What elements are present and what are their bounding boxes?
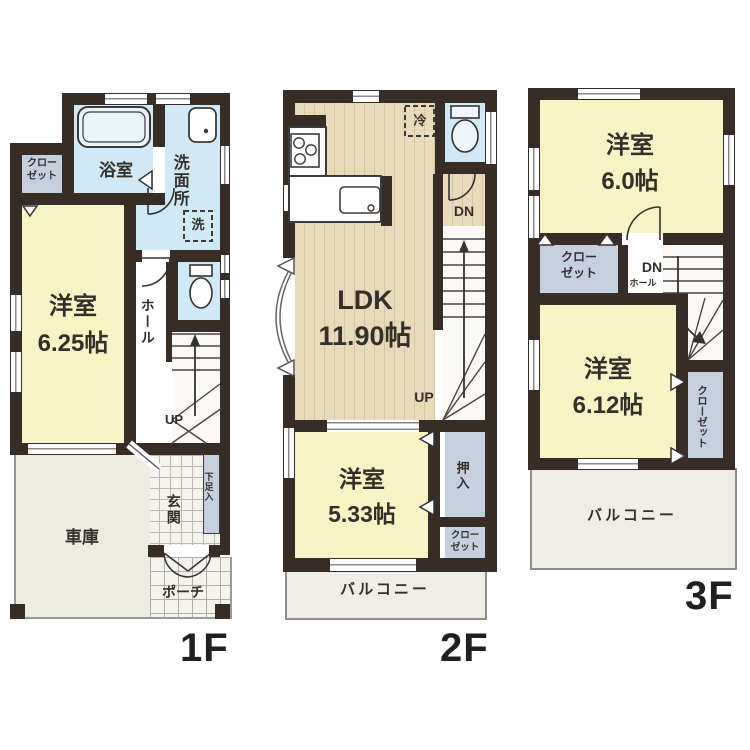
window bbox=[284, 428, 294, 478]
room-ldk-2f bbox=[295, 103, 435, 420]
wall bbox=[288, 115, 326, 127]
label-bath-1f: 浴室 bbox=[88, 160, 144, 182]
wall bbox=[676, 305, 688, 470]
room-toilet-2f bbox=[445, 103, 485, 162]
window bbox=[529, 340, 539, 390]
wall bbox=[528, 88, 540, 470]
label-closet2-3f: クローゼット bbox=[696, 376, 707, 456]
label-washer-1f: 洗 bbox=[189, 217, 207, 234]
wall bbox=[283, 90, 495, 103]
label-porch-1f: ポーチ bbox=[152, 583, 214, 601]
stairs-2f bbox=[443, 226, 485, 420]
window bbox=[486, 112, 496, 164]
wall bbox=[166, 262, 178, 320]
label-balcony-3f: バルコニー bbox=[565, 506, 699, 526]
label-hall-3f: ホール bbox=[626, 278, 660, 290]
wall bbox=[148, 545, 164, 557]
room-washroom-1f bbox=[136, 205, 165, 250]
wall bbox=[528, 293, 688, 305]
label-ldk-2f: LDK 11.90帖 bbox=[305, 282, 425, 355]
wall bbox=[166, 332, 172, 362]
window bbox=[724, 135, 734, 185]
label-closet1-3f: クロー ゼット bbox=[545, 250, 613, 281]
wall bbox=[435, 162, 487, 174]
bow-window bbox=[276, 258, 294, 376]
wall bbox=[166, 320, 222, 332]
wall bbox=[62, 93, 74, 205]
floor-plan: クロー ゼット 浴室 洗面所 洗 洋室 6.25帖 ホール UP 玄関 下足入 … bbox=[0, 0, 750, 750]
wall bbox=[528, 233, 622, 245]
window bbox=[221, 255, 229, 273]
window bbox=[221, 280, 229, 298]
label-dn-2f: DN bbox=[448, 202, 480, 220]
corner-post bbox=[215, 604, 230, 619]
wall bbox=[136, 250, 142, 262]
label-hall-1f: ホール bbox=[140, 272, 155, 372]
label-garage-1f: 車庫 bbox=[58, 527, 106, 549]
label-closet-1f: クロー ゼット bbox=[20, 157, 64, 183]
window bbox=[105, 94, 147, 104]
label-up-1f: UP bbox=[158, 412, 190, 429]
window bbox=[330, 559, 416, 571]
wall bbox=[663, 233, 735, 245]
window bbox=[284, 185, 294, 211]
wall bbox=[209, 545, 220, 557]
label-closet-2f: クロー ゼット bbox=[446, 530, 484, 555]
bath-door bbox=[153, 147, 165, 193]
label-bedroom-1f: 洋室 6.25帖 bbox=[24, 288, 122, 362]
window bbox=[578, 459, 638, 469]
floor-label-2f: 2F bbox=[440, 626, 489, 671]
wall bbox=[433, 174, 443, 330]
wall bbox=[10, 193, 165, 205]
wall bbox=[170, 250, 220, 262]
label-dn-3f: DN bbox=[638, 258, 666, 276]
wall bbox=[381, 176, 392, 226]
label-oshiire-2f: 押入 bbox=[455, 448, 469, 504]
label-shoebox-1f: 下足入 bbox=[203, 455, 212, 519]
label-fridge-2f: 冷 bbox=[408, 113, 432, 130]
window bbox=[11, 295, 21, 331]
window bbox=[156, 94, 190, 104]
window bbox=[11, 352, 21, 392]
wall bbox=[428, 432, 440, 560]
window bbox=[28, 444, 116, 454]
label-bedroom1-3f: 洋室 6.0帖 bbox=[560, 128, 700, 200]
label-balcony-2f: バルコニー bbox=[318, 580, 452, 600]
label-bedroom2-3f: 洋室 6.12帖 bbox=[545, 352, 671, 424]
window bbox=[221, 146, 229, 184]
label-entrance-1f: 玄関 bbox=[166, 478, 181, 542]
corner-post bbox=[10, 604, 25, 619]
wall bbox=[124, 205, 136, 443]
window bbox=[529, 148, 539, 190]
wall bbox=[153, 105, 165, 147]
label-washroom-1f: 洗面所 bbox=[170, 141, 187, 221]
window bbox=[353, 91, 379, 102]
label-up-2f: UP bbox=[408, 388, 440, 406]
room-toilet-1f bbox=[178, 262, 220, 320]
wall bbox=[440, 517, 488, 527]
sliding-door bbox=[327, 420, 419, 432]
floor-label-3f: 3F bbox=[685, 574, 734, 619]
label-bedroom-2f: 洋室 5.33帖 bbox=[298, 462, 426, 531]
wall bbox=[688, 360, 735, 372]
stairs-3f bbox=[688, 305, 723, 360]
floor-label-1f: 1F bbox=[180, 626, 229, 671]
window bbox=[578, 89, 640, 99]
window bbox=[529, 196, 539, 238]
